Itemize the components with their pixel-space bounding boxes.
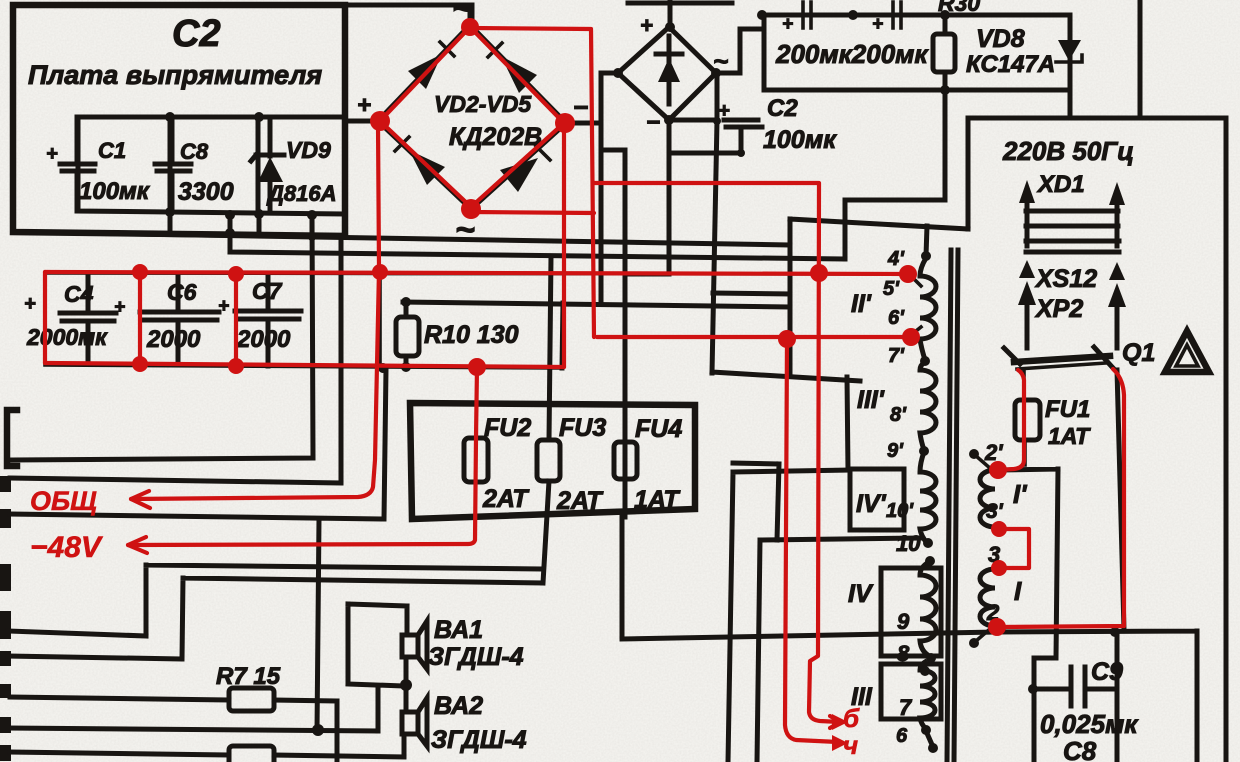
svg-text:б: б: [843, 703, 860, 733]
svg-text:C8: C8: [180, 139, 209, 164]
svg-text:Q1: Q1: [1122, 339, 1155, 367]
svg-text:КД202В: КД202В: [449, 123, 542, 151]
svg-text:8': 8': [890, 404, 907, 426]
svg-text:2000: 2000: [236, 326, 291, 353]
svg-text:ВА1: ВА1: [434, 616, 483, 644]
svg-text:3': 3': [986, 500, 1004, 523]
svg-text:+: +: [357, 92, 371, 119]
svg-text:2АТ: 2АТ: [556, 487, 604, 515]
svg-text:VD8: VD8: [976, 25, 1025, 53]
svg-text:XP2: XP2: [1034, 295, 1083, 323]
svg-text:−: −: [646, 109, 660, 136]
svg-text:+: +: [782, 14, 793, 35]
svg-text:1АТ: 1АТ: [634, 486, 681, 514]
svg-text:1АТ: 1АТ: [1048, 423, 1091, 449]
svg-text:220В 50Гц: 220В 50Гц: [1002, 136, 1134, 166]
svg-text:VD2-VD5: VD2-VD5: [434, 91, 532, 117]
svg-text:5': 5': [883, 278, 900, 300]
svg-text:IV: IV: [848, 580, 874, 608]
svg-text:R10 130: R10 130: [424, 321, 519, 349]
svg-text:I': I': [1013, 479, 1027, 509]
svg-text:9: 9: [897, 609, 910, 634]
svg-text:+: +: [24, 293, 36, 315]
svg-text:10: 10: [896, 531, 921, 556]
svg-text:С2: С2: [767, 95, 798, 122]
svg-text:+: +: [114, 297, 125, 318]
svg-text:XD1: XD1: [1036, 171, 1085, 198]
svg-text:ВА2: ВА2: [434, 692, 483, 720]
svg-text:−: −: [573, 92, 588, 122]
svg-text:IV': IV': [856, 490, 887, 518]
svg-text:0,025мк: 0,025мк: [1040, 709, 1139, 739]
svg-text:С6: С6: [167, 279, 197, 305]
svg-text:FU4: FU4: [635, 415, 682, 443]
svg-text:2АТ: 2АТ: [482, 485, 530, 513]
svg-text:100мк: 100мк: [79, 178, 151, 205]
svg-text:ЗГДШ-4: ЗГДШ-4: [431, 726, 527, 754]
svg-text:КС147А: КС147А: [966, 51, 1055, 78]
svg-text:I: I: [1014, 576, 1022, 606]
svg-text:VD9: VD9: [286, 137, 331, 163]
svg-text:200мк200мк: 200мк200мк: [775, 39, 929, 69]
svg-text:+: +: [218, 296, 229, 317]
svg-text:II': II': [851, 290, 872, 318]
svg-text:FU2: FU2: [484, 414, 531, 442]
svg-text:10': 10': [886, 500, 914, 522]
svg-text:−48V: −48V: [30, 531, 104, 564]
svg-text:III': III': [857, 386, 885, 414]
svg-text:3300: 3300: [178, 178, 234, 206]
svg-text:C1: C1: [98, 138, 126, 163]
svg-text:R7 15: R7 15: [216, 663, 281, 690]
svg-text:7: 7: [899, 695, 913, 720]
svg-text:+: +: [872, 14, 883, 35]
svg-text:100мк: 100мк: [763, 126, 837, 154]
svg-text:ЗГДШ-4: ЗГДШ-4: [428, 643, 524, 671]
svg-text:С8: С8: [1063, 736, 1097, 762]
svg-text:+: +: [640, 13, 653, 38]
svg-text:4': 4': [887, 248, 905, 270]
svg-text:Плата выпрямителя: Плата выпрямителя: [28, 60, 322, 90]
svg-text:2': 2': [984, 440, 1003, 465]
svg-text:FU3: FU3: [559, 414, 606, 442]
svg-text:2000мк: 2000мк: [26, 324, 108, 350]
svg-text:Д816А: Д816А: [266, 181, 336, 206]
svg-text:C9: C9: [1091, 658, 1123, 686]
svg-text:6: 6: [896, 725, 908, 747]
svg-text:ОБЩ: ОБЩ: [30, 486, 97, 516]
svg-text:2000: 2000: [146, 326, 201, 353]
svg-text:ч: ч: [843, 730, 858, 760]
svg-text:C2: C2: [172, 13, 221, 55]
svg-text:7': 7': [888, 345, 905, 367]
svg-text:6': 6': [888, 307, 905, 329]
svg-text:+: +: [46, 143, 58, 165]
svg-text:9': 9': [887, 440, 904, 462]
svg-text:FU1: FU1: [1045, 396, 1090, 423]
svg-text:XS12: XS12: [1034, 265, 1097, 293]
